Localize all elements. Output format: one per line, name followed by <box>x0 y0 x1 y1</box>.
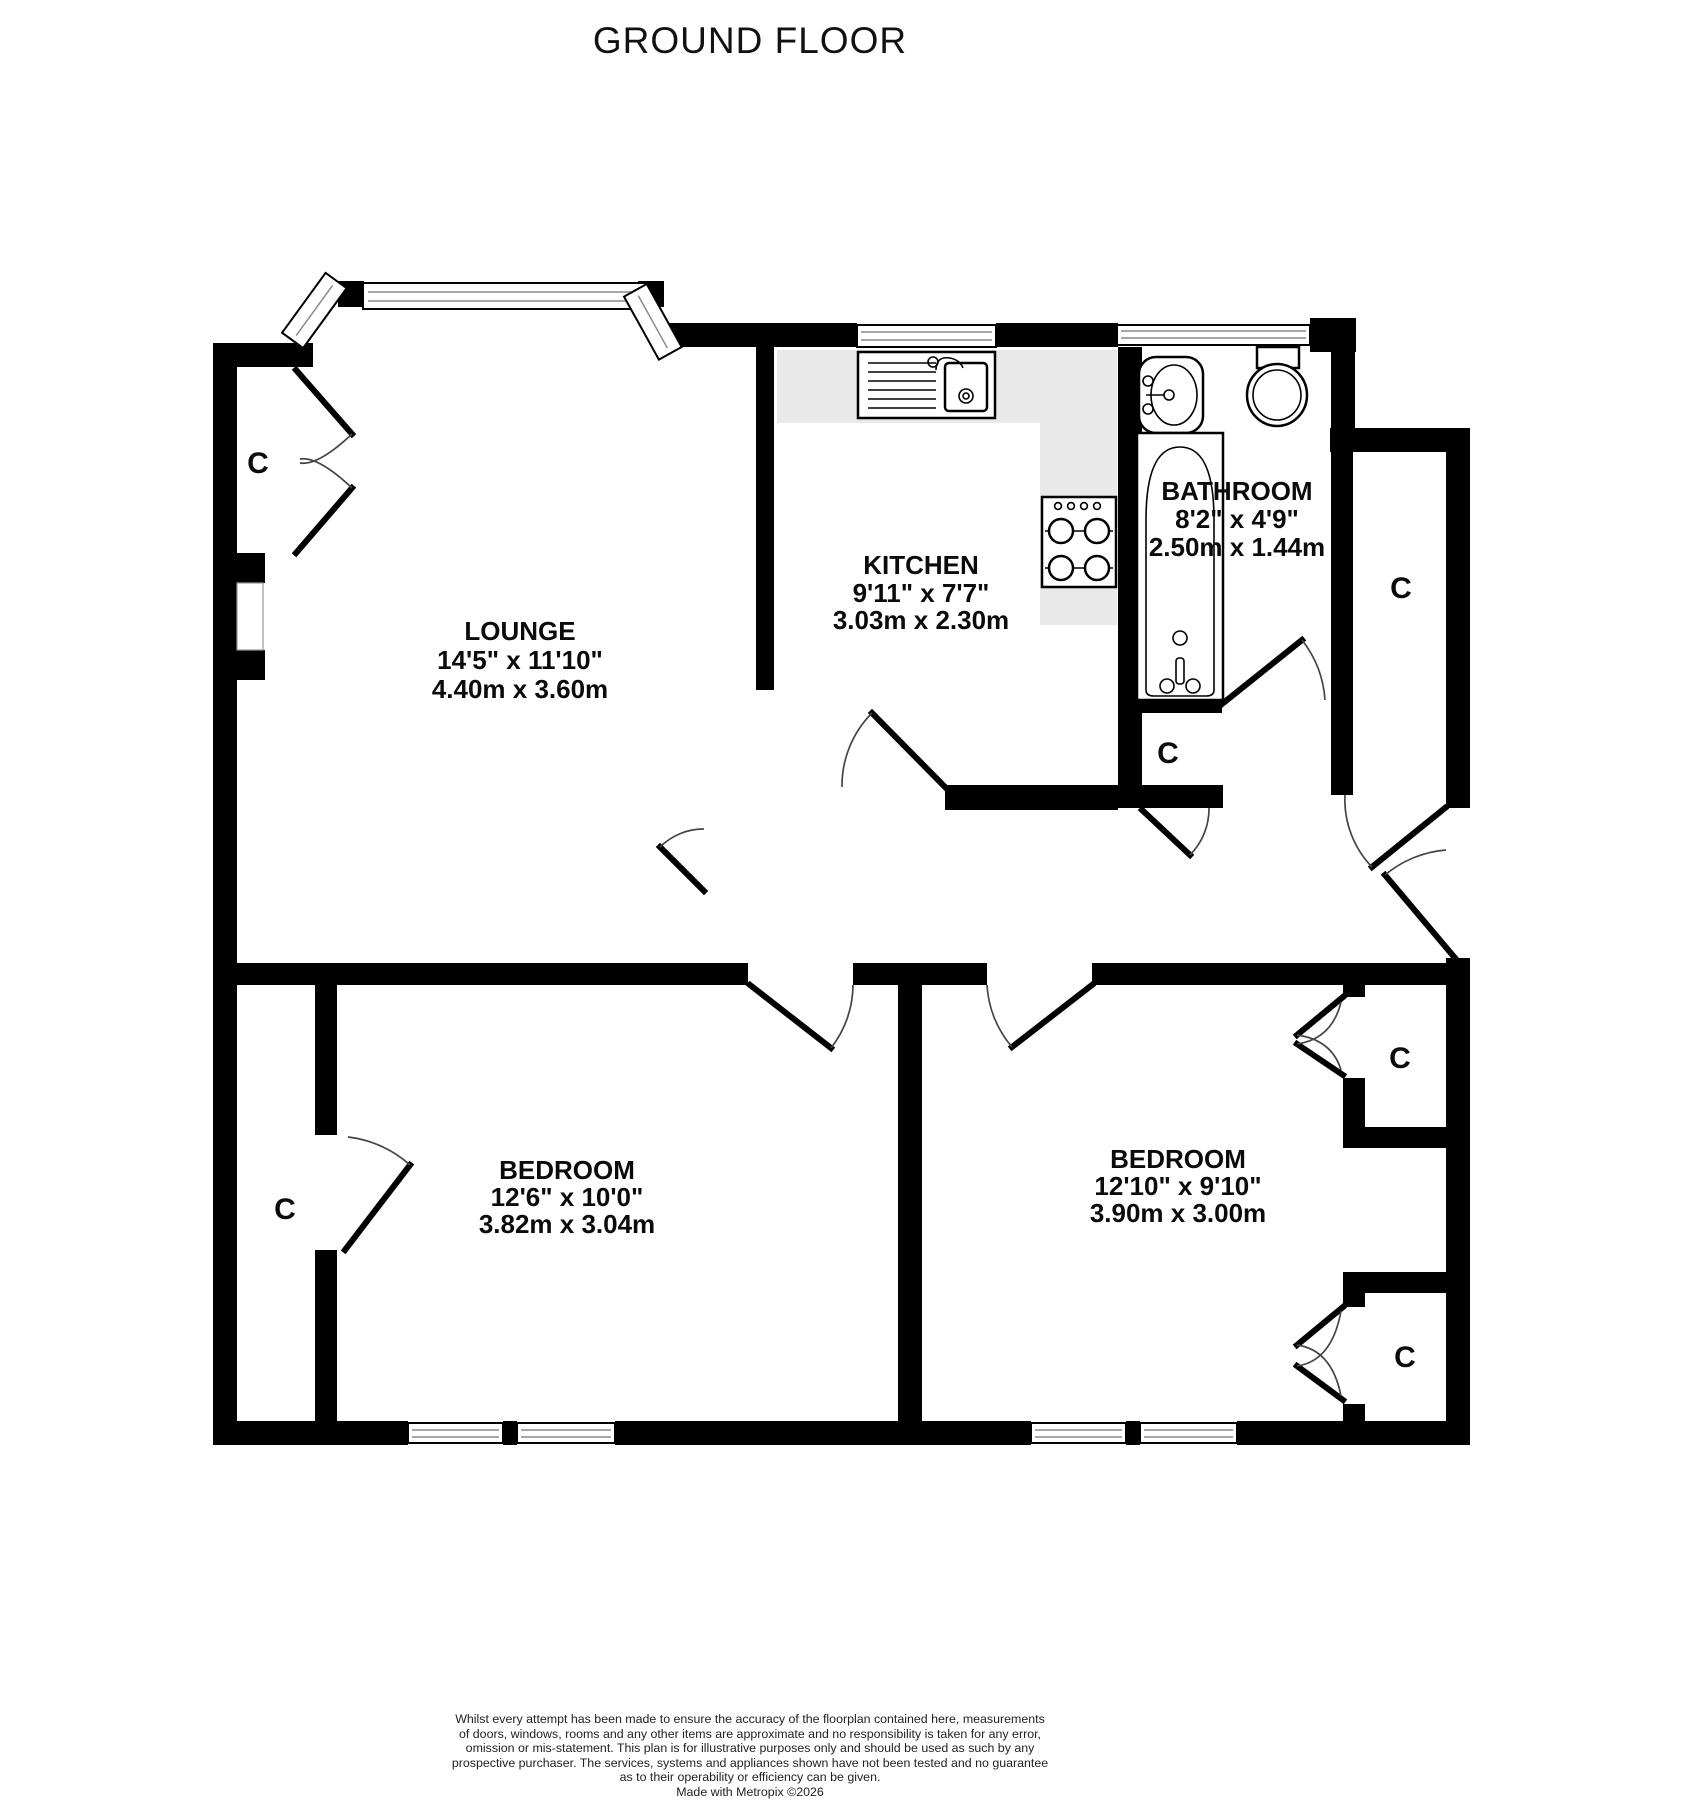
closet-label-hall: C <box>1157 737 1179 770</box>
disclaimer-line: prospective purchaser. The services, sys… <box>0 1756 1500 1771</box>
floor-plan-drawing: LOUNGE 14'5" x 11'10" 4.40m x 3.60m KITC… <box>0 0 1684 1800</box>
kitchen-dims-imperial: 9'11" x 7'7" <box>853 578 990 608</box>
chimney-recess <box>237 583 263 650</box>
bedroom2-dims-metric: 3.90m x 3.00m <box>1090 1198 1266 1228</box>
walls <box>213 281 1470 1445</box>
kitchen-door <box>842 713 945 787</box>
wash-basin-icon <box>1139 357 1203 433</box>
closet-label-bedroom2-upper: C <box>1389 1042 1411 1075</box>
lounge-closet-doors <box>296 370 352 553</box>
closet-label-bedroom2-lower: C <box>1394 1341 1416 1374</box>
room-label-bathroom: BATHROOM 8'2" x 4'9" 2.50m x 1.44m <box>1149 476 1325 562</box>
lounge-dims-metric: 4.40m x 3.60m <box>432 674 608 704</box>
floorplan-page: GROUND FLOOR <box>0 0 1684 1800</box>
toilet-icon <box>1247 347 1307 426</box>
closet-label-lounge: C <box>247 447 269 480</box>
bedroom1-door <box>750 985 853 1048</box>
bathroom-name: BATHROOM <box>1161 476 1312 506</box>
bedroom1-closet-door <box>345 1137 410 1250</box>
disclaimer-line: of doors, windows, rooms and any other i… <box>0 1727 1500 1742</box>
bedroom2-dims-imperial: 12'10" x 9'10" <box>1094 1171 1261 1201</box>
chimney-breast-top <box>237 553 265 583</box>
lounge-dims-imperial: 14'5" x 11'10" <box>437 645 603 675</box>
metropix-credit: Made with Metropix ©2026 <box>0 1785 1500 1800</box>
bathtub-icon <box>1137 433 1223 700</box>
bedroom1-dims-metric: 3.82m x 3.04m <box>479 1209 655 1239</box>
bathroom-door <box>1217 640 1325 708</box>
room-label-bedroom2: BEDROOM 12'10" x 9'10" 3.90m x 3.00m <box>1090 1144 1266 1228</box>
disclaimer-line: omission or mis-statement. This plan is … <box>0 1741 1500 1756</box>
bedroom2-name: BEDROOM <box>1110 1144 1246 1174</box>
hob-icon <box>1042 497 1116 587</box>
closet-label-bedroom1: C <box>274 1193 296 1226</box>
kitchen-dims-metric: 3.03m x 2.30m <box>833 605 1009 635</box>
bay-window <box>282 273 682 360</box>
bedroom2-closet-lower-doors <box>1297 1307 1343 1400</box>
right-closet-door <box>1345 795 1445 867</box>
bedroom1-name: BEDROOM <box>499 1155 635 1185</box>
kitchen-name: KITCHEN <box>863 550 979 580</box>
bathroom-dims-metric: 2.50m x 1.44m <box>1149 532 1325 562</box>
room-label-lounge: LOUNGE 14'5" x 11'10" 4.40m x 3.60m <box>432 616 608 704</box>
hall-closet-door <box>1142 808 1209 855</box>
bedroom1-dims-imperial: 12'6" x 10'0" <box>491 1182 644 1212</box>
kitchen-sink <box>858 352 995 418</box>
chimney-breast-bottom <box>237 650 265 680</box>
disclaimer: Whilst every attempt has been made to en… <box>0 1712 1500 1800</box>
bathroom-dims-imperial: 8'2" x 4'9" <box>1175 504 1299 534</box>
bathroom-window <box>1117 325 1310 345</box>
room-label-bedroom1: BEDROOM 12'6" x 10'0" 3.82m x 3.04m <box>479 1155 655 1239</box>
closet-label-right: C <box>1390 572 1412 605</box>
lounge-name: LOUNGE <box>464 616 575 646</box>
bedroom2-door <box>987 985 1092 1047</box>
disclaimer-line: as to their operability or efficiency ca… <box>0 1770 1500 1785</box>
lounge-door <box>660 829 704 891</box>
bedroom2-closet-upper-doors <box>1297 997 1343 1075</box>
kitchen-window <box>857 325 996 347</box>
disclaimer-line: Whilst every attempt has been made to en… <box>0 1712 1500 1727</box>
room-label-kitchen: KITCHEN 9'11" x 7'7" 3.03m x 2.30m <box>833 550 1009 635</box>
entrance-door <box>1385 850 1455 958</box>
